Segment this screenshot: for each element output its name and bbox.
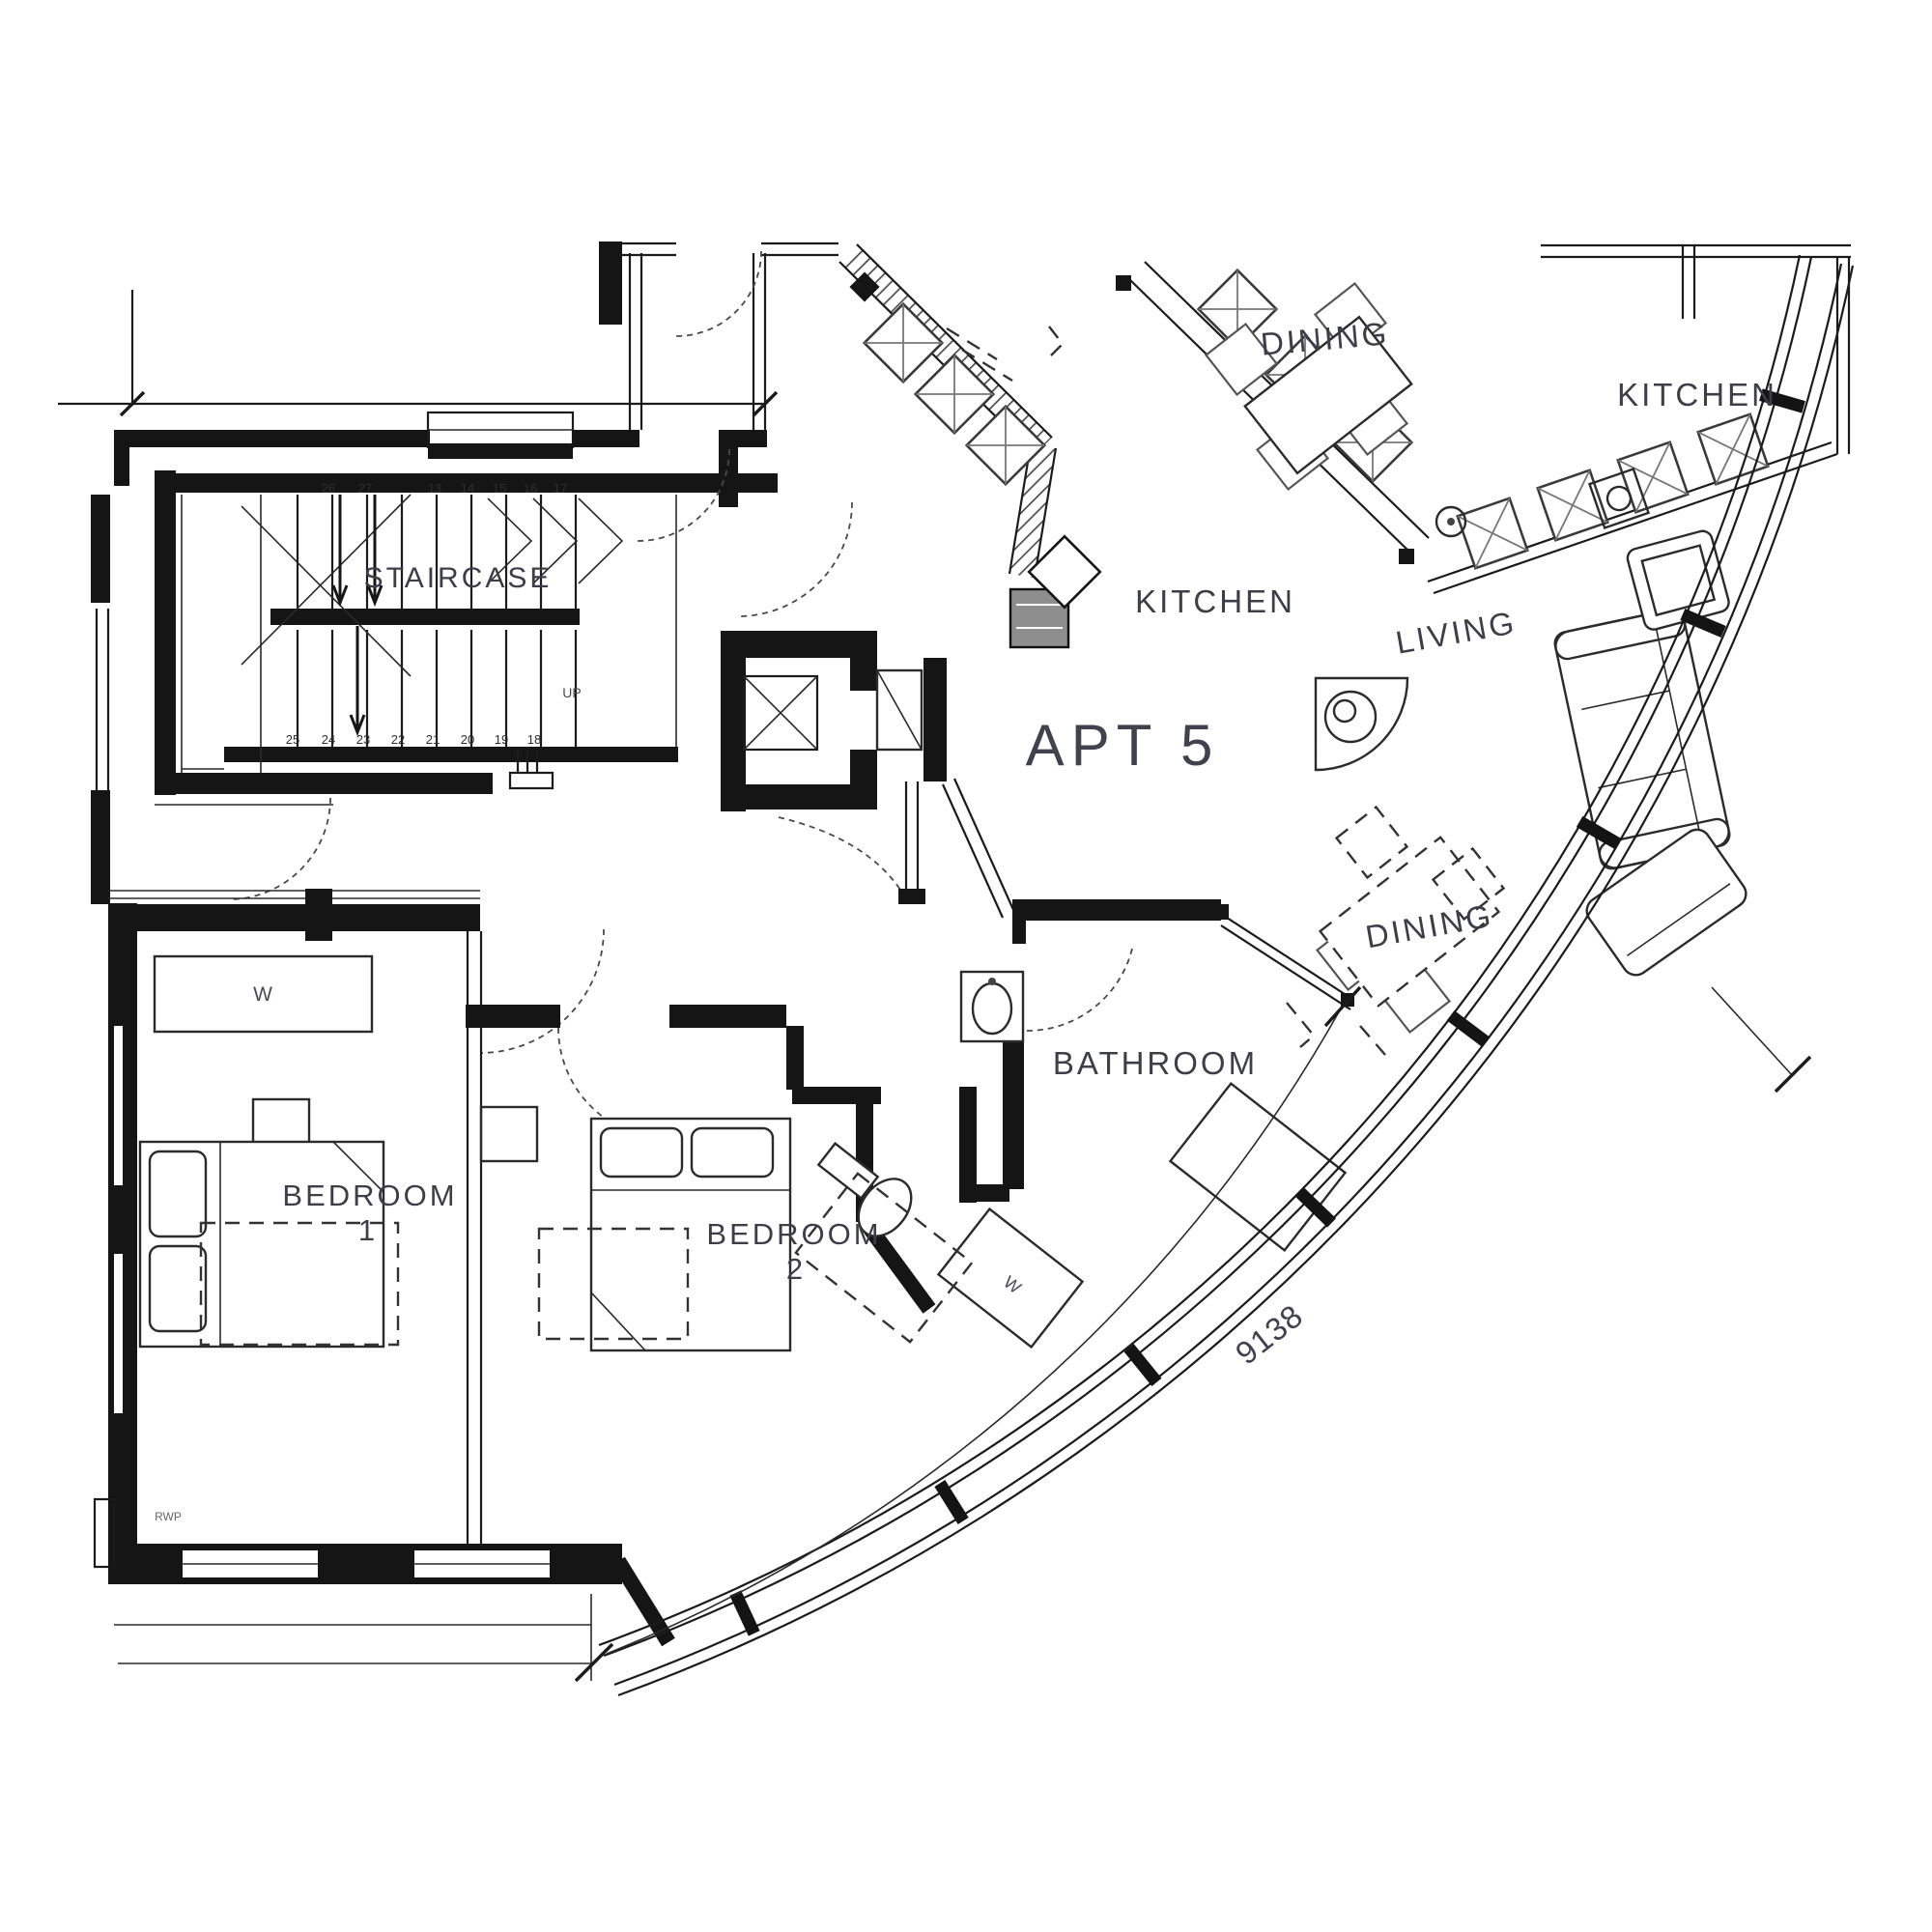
up-label: UP bbox=[562, 685, 581, 700]
lift-shaft bbox=[721, 631, 877, 811]
bathroom-fixtures: W bbox=[818, 972, 1345, 1347]
neighbour-kitchen-walls bbox=[1116, 245, 1851, 593]
step-number: 13 bbox=[428, 481, 441, 496]
step-number: 26 bbox=[322, 481, 335, 496]
bedroom1-label: BEDROOM bbox=[282, 1179, 457, 1212]
kitchen-label: KITCHEN bbox=[1135, 583, 1295, 619]
step-number: 19 bbox=[495, 732, 508, 747]
step-number: 27 bbox=[358, 481, 372, 496]
step-number: 21 bbox=[426, 732, 440, 747]
staircase-block: 26 27 13 14 15 16 17 25 24 23 22 21 20 1… bbox=[155, 470, 778, 805]
entry-corridor-walls bbox=[622, 243, 838, 430]
step-number: 18 bbox=[527, 732, 541, 747]
apartment-label: APT 5 bbox=[1026, 713, 1220, 778]
shower-tray bbox=[1171, 1084, 1346, 1251]
dimension-lines-top bbox=[58, 290, 777, 415]
bathroom-label: BATHROOM bbox=[1053, 1045, 1258, 1081]
bedroom2-label: BEDROOM bbox=[706, 1217, 881, 1251]
living-label: LIVING bbox=[1393, 604, 1520, 660]
wardrobe-1-label: W bbox=[253, 983, 272, 1006]
staircase-label: STAIRCASE bbox=[364, 562, 553, 594]
kitchen-top-right-label: KITCHEN bbox=[1617, 377, 1777, 412]
left-exterior-wall-upper bbox=[91, 495, 110, 904]
corner-table bbox=[1316, 678, 1407, 770]
bedroom1-number: 1 bbox=[358, 1213, 378, 1247]
lift-lobby-walls bbox=[877, 658, 1014, 918]
step-number: 25 bbox=[286, 732, 299, 747]
step-number: 14 bbox=[461, 481, 474, 496]
kitchen-units bbox=[865, 304, 1100, 647]
step-number: 17 bbox=[554, 481, 567, 496]
step-number: 22 bbox=[391, 732, 405, 747]
top-exterior-wall bbox=[114, 241, 767, 507]
bedroom1-furniture: W bbox=[140, 956, 398, 1347]
step-number: 16 bbox=[524, 481, 537, 496]
bathroom-cupboard: W bbox=[938, 1209, 1082, 1348]
step-number: 24 bbox=[322, 732, 335, 747]
step-number: 23 bbox=[356, 732, 370, 747]
floor-plan-page: 26 27 13 14 15 16 17 25 24 23 22 21 20 1… bbox=[0, 0, 1932, 1932]
step-number: 20 bbox=[461, 732, 474, 747]
bed-1 bbox=[140, 1142, 384, 1347]
rwp-label: RWP bbox=[155, 1510, 182, 1523]
floor-plan-svg: 26 27 13 14 15 16 17 25 24 23 22 21 20 1… bbox=[0, 0, 1932, 1932]
bedroom2-number: 2 bbox=[786, 1252, 806, 1286]
stair-treads-lower bbox=[298, 630, 576, 747]
step-number: 15 bbox=[493, 481, 506, 496]
